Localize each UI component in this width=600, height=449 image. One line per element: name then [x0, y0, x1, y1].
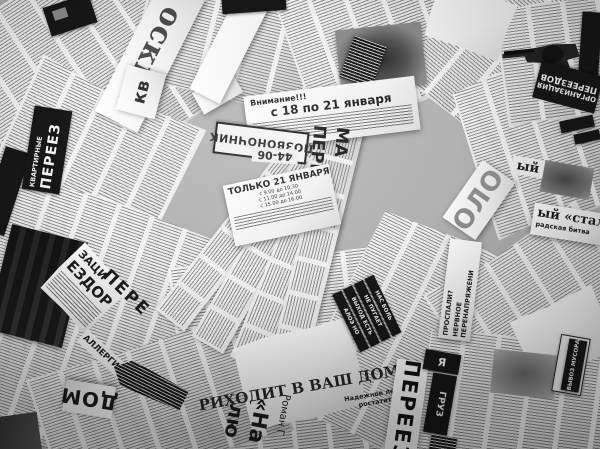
teapot-photo [490, 349, 558, 399]
photo-highlight [52, 7, 68, 21]
garbage-ad-text: ВЫВОЗ МУСОРА [567, 340, 582, 392]
ya-block-text: Я [437, 355, 448, 369]
stalingrad-small-text: ый [516, 158, 541, 177]
phone-fragment-text: 44-06 [257, 148, 293, 163]
dom-stamp-text: ДОМ [59, 383, 120, 416]
newspaper-collage: осква кв КВАРТИРНЫЕ ПЕРЕЕЗ Внимание!!! с… [0, 0, 600, 449]
pere-letters-text: ПЕРЕ [98, 266, 154, 321]
cargo-block-text: ГРУЗ [433, 390, 447, 417]
phone-fragment: 44-06 [252, 146, 299, 164]
dark-photo-scrap [0, 412, 43, 449]
kv-text: кв [128, 78, 154, 106]
